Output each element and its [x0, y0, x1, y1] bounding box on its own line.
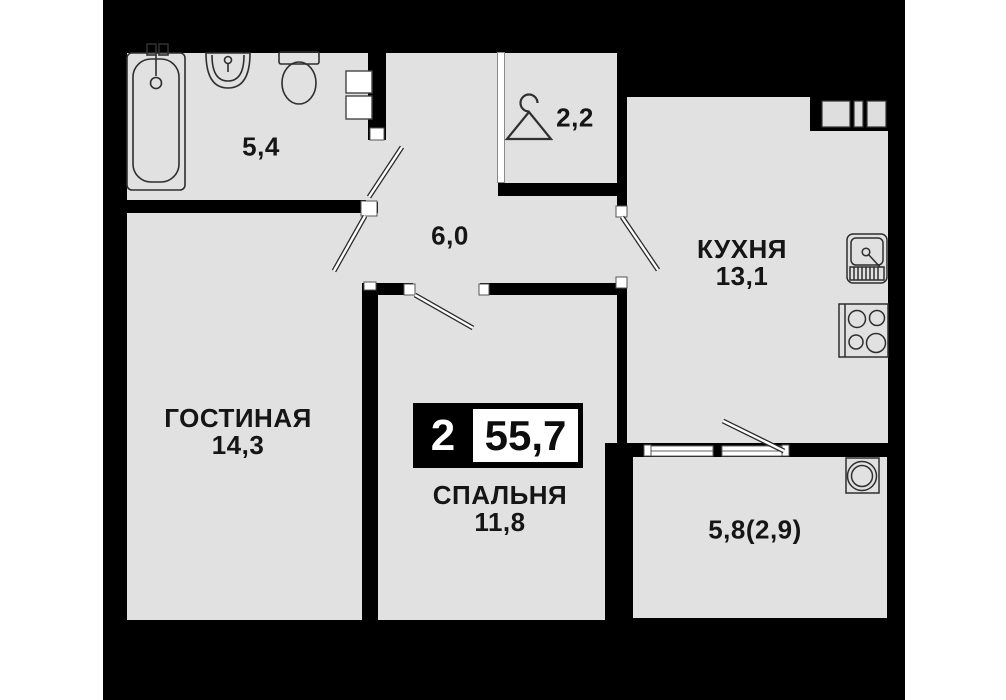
bedroom-area: 11,8: [433, 509, 567, 536]
bathroom-area: 5,4: [242, 134, 280, 161]
apartment-badge: 2 55,7: [413, 403, 583, 468]
kitchen-label: КУХНЯ 13,1: [697, 236, 787, 290]
badge-room-count: 2: [413, 403, 473, 468]
bedroom-label: СПАЛЬНЯ 11,8: [433, 482, 567, 536]
wall-balcony-west: [605, 443, 633, 620]
wall-bedroom-top-right: [480, 283, 627, 295]
floor-bathroom-door-opening: [366, 140, 388, 202]
balcony-label: 5,8(2,9): [708, 517, 802, 544]
living-room-area: 14,3: [164, 432, 312, 459]
floor-plan-canvas: 2 55,7 5,4 2,2 6,0 КУХНЯ 13,1 ГОСТИНАЯ 1…: [0, 0, 1006, 700]
wall-kitchen-west-lower: [617, 288, 627, 450]
wall-living-bedroom-divider: [362, 283, 378, 620]
wall-bathroom-right: [368, 48, 386, 140]
wall-kitchen-balcony: [605, 443, 905, 457]
wall-bathroom-bottom: [103, 200, 362, 213]
wall-wardrobe-bottom: [498, 183, 627, 196]
kitchen-name: КУХНЯ: [697, 236, 787, 263]
wardrobe-label: 2,2: [556, 105, 594, 132]
wall-kitchen-top: [627, 90, 905, 97]
floor-hallway: [378, 196, 627, 295]
kitchen-area: 13,1: [697, 263, 787, 290]
bedroom-name: СПАЛЬНЯ: [433, 482, 567, 509]
balcony-area: 5,8(2,9): [708, 517, 802, 544]
wall-bedroom-top-left: [362, 283, 413, 295]
living-room-name: ГОСТИНАЯ: [164, 405, 312, 432]
wardrobe-partition: [497, 52, 505, 183]
badge-total-area: 55,7: [473, 409, 578, 462]
hallway-label: 6,0: [431, 223, 469, 250]
hallway-area: 6,0: [431, 223, 469, 250]
wall-top: [103, 48, 627, 53]
living-room-label: ГОСТИНАЯ 14,3: [164, 405, 312, 459]
wall-vent-shaft-block: [810, 97, 888, 131]
wardrobe-area: 2,2: [556, 105, 594, 132]
bathroom-label: 5,4: [242, 134, 280, 161]
floor-bathroom: [127, 52, 368, 200]
